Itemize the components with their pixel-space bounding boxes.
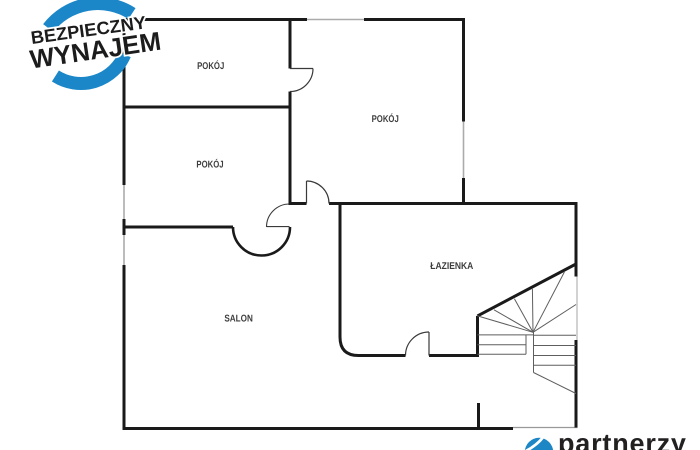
svg-text:SALON: SALON [224, 313, 253, 324]
svg-text:ŁAZIENKA: ŁAZIENKA [430, 261, 473, 272]
svg-text:partnerzy: partnerzy [558, 429, 687, 450]
svg-text:POKÓJ: POKÓJ [197, 60, 224, 72]
svg-text:POKÓJ: POKÓJ [372, 113, 399, 125]
svg-text:POKÓJ: POKÓJ [196, 158, 223, 170]
